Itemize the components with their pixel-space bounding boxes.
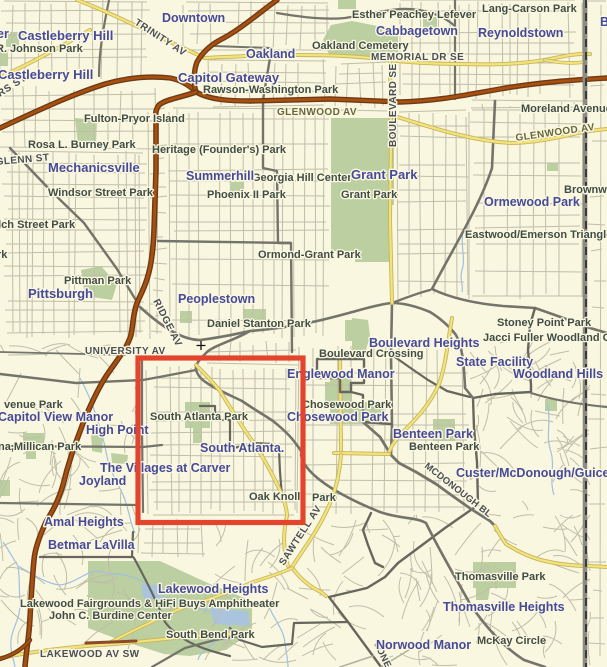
svg-text:Mechanicsville: Mechanicsville [48, 160, 140, 175]
svg-text:Norwood Manor: Norwood Manor [376, 638, 471, 652]
svg-text:Castleberry Hill: Castleberry Hill [18, 28, 113, 43]
svg-text:South Bend Park: South Bend Park [166, 629, 256, 641]
svg-text:Cabbagetown: Cabbagetown [376, 24, 458, 38]
svg-text:GLENWOOD AV: GLENWOOD AV [277, 107, 357, 118]
svg-text:Windsor Street Park: Windsor Street Park [48, 187, 154, 199]
svg-text:Ormond-Grant Park: Ormond-Grant Park [258, 249, 362, 261]
svg-text:Reynoldstown: Reynoldstown [478, 26, 563, 40]
svg-text:Grant Park: Grant Park [341, 189, 398, 201]
svg-text:Summerhill: Summerhill [186, 169, 254, 183]
svg-text:McKay Circle: McKay Circle [477, 635, 546, 647]
svg-text:Lakewood Heights: Lakewood Heights [158, 582, 268, 596]
svg-text:South Atlanta.: South Atlanta. [200, 441, 284, 455]
svg-text:Moreland Avenue: Moreland Avenue [521, 103, 607, 115]
svg-text:Br: Br [600, 15, 607, 29]
svg-text:rk: rk [0, 249, 8, 261]
svg-text:Park: Park [312, 492, 337, 504]
svg-text:Heritage (Founder's) Park: Heritage (Founder's) Park [152, 144, 287, 156]
svg-text:Lakewood Fairgrounds & HiFi Bu: Lakewood Fairgrounds & HiFi Buys Amphith… [20, 598, 280, 610]
svg-text:Oakland: Oakland [246, 47, 295, 61]
svg-text:Jacci Fuller Woodland Ga: Jacci Fuller Woodland Ga [483, 332, 607, 344]
svg-text:Stoney Point Park: Stoney Point Park [497, 317, 592, 329]
svg-text:UNIVERSITY AV: UNIVERSITY AV [85, 346, 166, 357]
svg-text:John C. Burdine Center: John C. Burdine Center [49, 610, 173, 622]
svg-text:Benteen Park: Benteen Park [393, 427, 473, 441]
svg-text:Boulevard Heights: Boulevard Heights [369, 336, 479, 350]
svg-text:Capitol Gateway: Capitol Gateway [178, 70, 280, 85]
svg-text:Lang-Carson Park: Lang-Carson Park [482, 3, 578, 15]
svg-text:Castleberry Hill: Castleberry Hill [0, 67, 93, 82]
svg-text:The Villages at Carver: The Villages at Carver [100, 461, 231, 475]
svg-text:Joyland: Joyland [79, 474, 126, 488]
svg-text:Eastwood/Emerson Triangle: Eastwood/Emerson Triangle [465, 229, 607, 241]
svg-text:Downtown: Downtown [162, 11, 225, 25]
svg-text:Amal Heights: Amal Heights [44, 515, 124, 529]
svg-text:BOULEVARD SE: BOULEVARD SE [388, 63, 399, 147]
svg-text:Betmar LaVilla: Betmar LaVilla [48, 538, 136, 552]
svg-text:South Atlanta Park: South Atlanta Park [150, 411, 249, 423]
svg-text:Benteen Park: Benteen Park [409, 441, 480, 453]
svg-text:Custer/McDonough/Guice: Custer/McDonough/Guice [456, 466, 607, 480]
svg-text:Thomasville Heights: Thomasville Heights [443, 600, 565, 614]
svg-text:Peoplestown: Peoplestown [178, 292, 255, 306]
svg-text:Capitol View Manor: Capitol View Manor [0, 410, 113, 424]
svg-text:LAKEWOOD AV SW: LAKEWOOD AV SW [40, 649, 140, 660]
svg-text:Phoenix II Park: Phoenix II Park [207, 189, 287, 201]
svg-text:Grant Park: Grant Park [351, 167, 418, 182]
svg-text:R. Johnson Park: R. Johnson Park [0, 43, 84, 55]
svg-text:MEMORIAL DR SE: MEMORIAL DR SE [371, 52, 464, 63]
svg-text:Esther Peachey Lefever: Esther Peachey Lefever [352, 9, 477, 21]
svg-text:elch Street Park: elch Street Park [0, 219, 76, 231]
svg-text:Rosa L. Burney Park: Rosa L. Burney Park [28, 139, 136, 151]
svg-text:Thomasville Park: Thomasville Park [455, 571, 546, 583]
svg-text:er: er [0, 27, 9, 41]
svg-text:Oak Knoll: Oak Knoll [249, 491, 300, 503]
svg-text:Daniel Stanton Park: Daniel Stanton Park [207, 318, 312, 330]
svg-text:Woodland Hills: Woodland Hills [513, 367, 603, 381]
svg-text:Ormewood Park: Ormewood Park [484, 195, 580, 209]
svg-text:Pittsburgh: Pittsburgh [28, 286, 93, 301]
svg-text:na,Millican Park: na,Millican Park [0, 441, 82, 453]
svg-text:Georgia Hill Center: Georgia Hill Center [252, 172, 352, 184]
svg-text:Oakland Cemetery: Oakland Cemetery [312, 40, 409, 52]
svg-text:Rawson-Washington Park: Rawson-Washington Park [203, 84, 339, 96]
svg-text:Fulton-Pryor Island: Fulton-Pryor Island [84, 113, 185, 125]
